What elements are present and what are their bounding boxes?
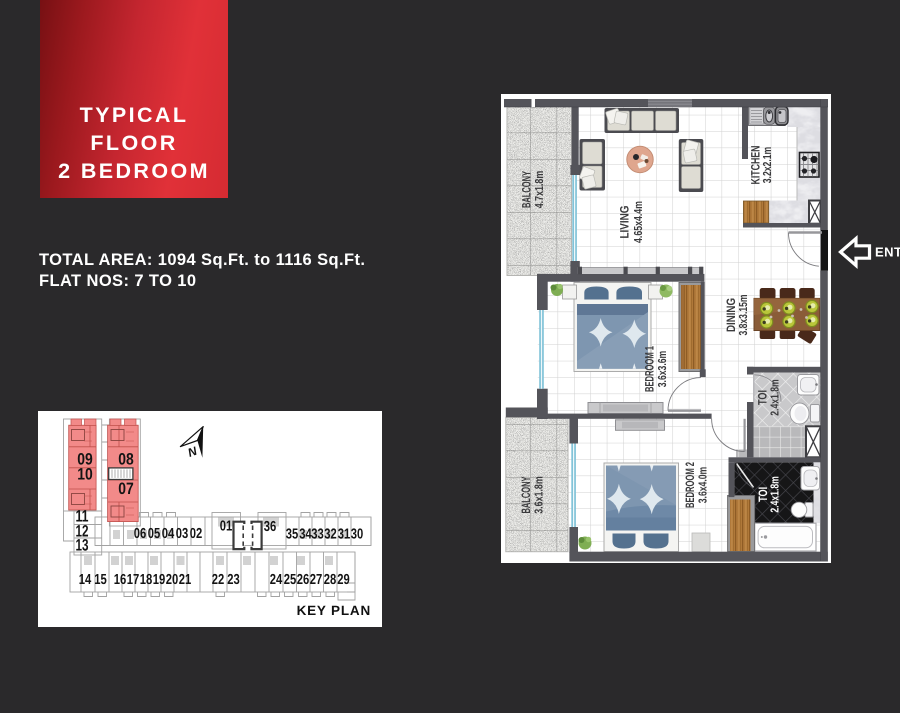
svg-text:4.65x4.4m: 4.65x4.4m [632, 201, 645, 243]
svg-text:15: 15 [94, 572, 107, 588]
svg-text:25: 25 [284, 572, 297, 588]
svg-text:BEDROOM 1: BEDROOM 1 [643, 346, 657, 392]
svg-text:3.6x3.6m: 3.6x3.6m [656, 351, 669, 388]
svg-text:22: 22 [212, 572, 225, 588]
svg-text:10: 10 [77, 466, 93, 484]
svg-text:06: 06 [134, 526, 147, 542]
svg-text:DINING: DINING [724, 298, 738, 332]
svg-text:27: 27 [310, 572, 323, 588]
svg-text:2.4x1.8m: 2.4x1.8m [768, 379, 781, 416]
svg-text:3.2x2.1m: 3.2x2.1m [761, 147, 774, 184]
svg-text:35: 35 [286, 527, 299, 543]
svg-text:03: 03 [176, 526, 189, 542]
svg-text:18: 18 [140, 572, 153, 588]
svg-text:4.7x1.8m: 4.7x1.8m [533, 171, 546, 209]
svg-text:14: 14 [79, 572, 92, 588]
svg-text:33: 33 [311, 527, 324, 543]
svg-text:13: 13 [76, 537, 89, 555]
svg-text:05: 05 [148, 526, 161, 542]
svg-text:3.6x1.8m: 3.6x1.8m [532, 476, 545, 514]
svg-text:28: 28 [324, 572, 337, 588]
svg-text:01: 01 [220, 519, 233, 535]
svg-text:31: 31 [338, 527, 351, 543]
svg-text:29: 29 [337, 572, 350, 588]
svg-text:BALCONY: BALCONY [519, 477, 533, 514]
svg-text:20: 20 [166, 572, 179, 588]
svg-text:3.8x3.15m: 3.8x3.15m [737, 295, 750, 336]
svg-text:32: 32 [324, 527, 337, 543]
svg-text:30: 30 [351, 527, 364, 543]
svg-text:19: 19 [153, 572, 166, 588]
svg-text:23: 23 [227, 572, 240, 588]
svg-text:24: 24 [270, 572, 283, 588]
svg-text:16: 16 [114, 572, 127, 588]
svg-text:04: 04 [162, 526, 175, 542]
svg-text:21: 21 [179, 572, 192, 588]
svg-text:BALCONY: BALCONY [519, 171, 533, 208]
svg-text:26: 26 [297, 572, 310, 588]
svg-text:17: 17 [127, 572, 140, 588]
svg-text:2.4x1.8m: 2.4x1.8m [769, 476, 782, 513]
svg-text:02: 02 [190, 526, 203, 542]
svg-text:LIVING: LIVING [618, 206, 632, 239]
svg-text:KEY PLAN: KEY PLAN [297, 603, 371, 618]
svg-text:34: 34 [299, 527, 312, 543]
svg-text:07: 07 [118, 480, 134, 498]
svg-text:08: 08 [118, 451, 134, 469]
svg-text:36: 36 [264, 519, 277, 535]
svg-text:BEDROOM 2: BEDROOM 2 [683, 462, 697, 508]
svg-text:3.6x4.0m: 3.6x4.0m [696, 467, 709, 504]
svg-text:ENTRY: ENTRY [875, 245, 900, 260]
